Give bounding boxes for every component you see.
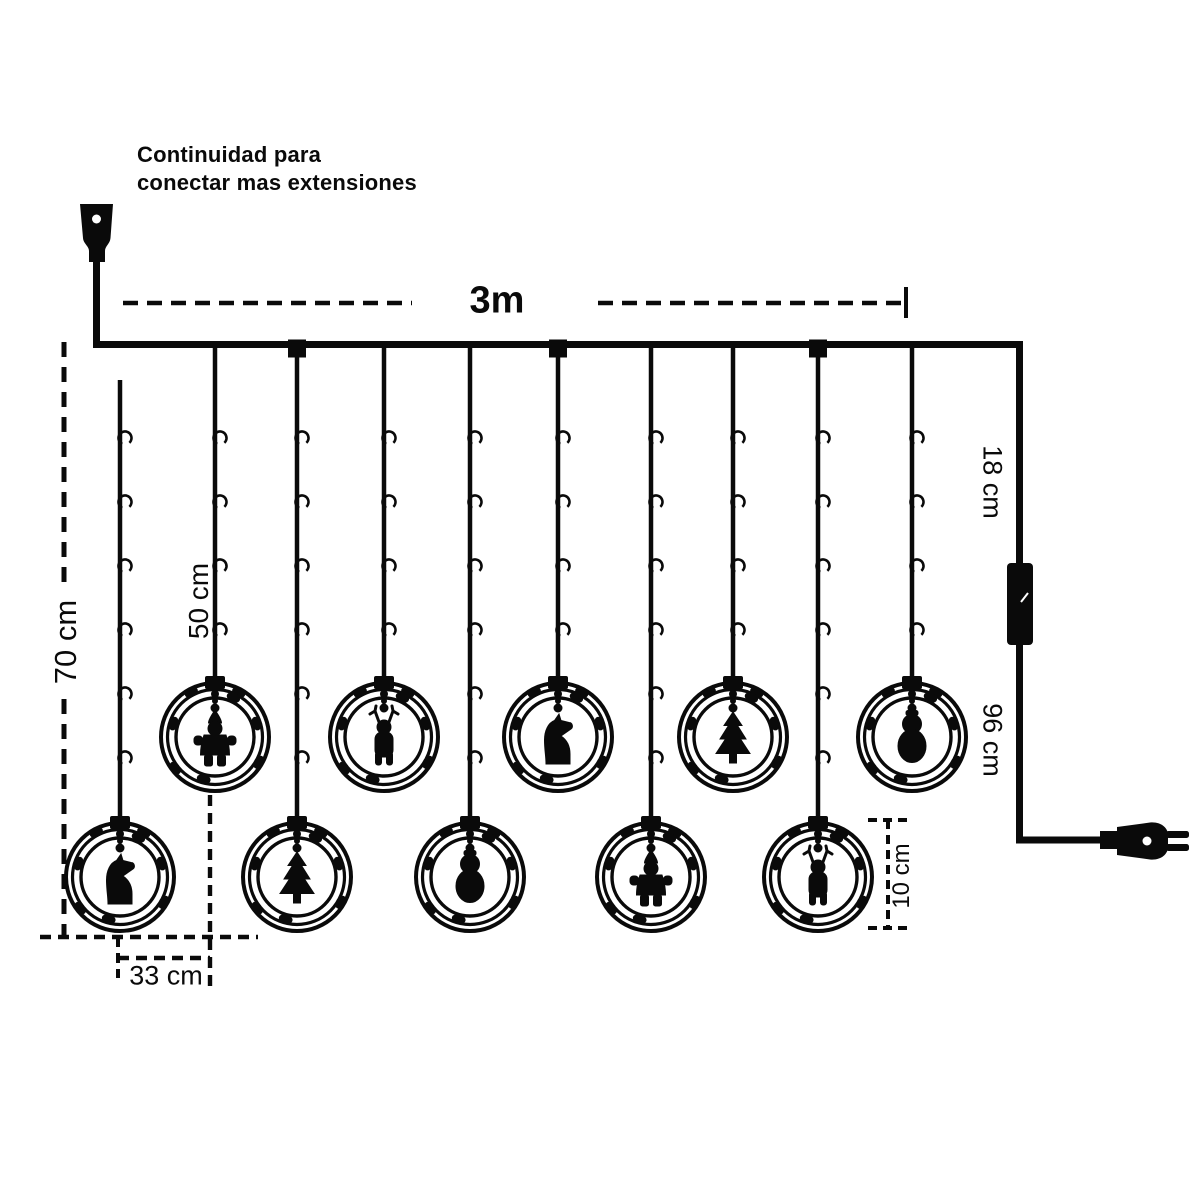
tree-icon (716, 712, 750, 763)
ring-clamp (205, 676, 225, 689)
santa-icon (630, 850, 672, 906)
wire-junction (549, 340, 567, 358)
dim-short-drop-label: 50 cm (183, 563, 215, 639)
ornament-ring-santa (597, 816, 705, 931)
ring-clamp (548, 676, 568, 689)
extension-connector-icon (80, 204, 113, 262)
note-line-1: Continuidad para (137, 141, 417, 169)
ornament-ring-tree (679, 676, 787, 791)
light-drop (679, 345, 787, 792)
horse-icon (107, 854, 135, 904)
light-drop (330, 345, 438, 792)
ring-clamp (110, 816, 130, 829)
snowman-icon (456, 851, 484, 903)
string-lights-diagram: Continuidad para conectar mas extensione… (0, 0, 1200, 1200)
light-drop (858, 345, 966, 792)
ornament-ring-snowman (858, 676, 966, 791)
dim-lead-top-label: 18 cm (977, 445, 1008, 519)
snowman-icon (898, 711, 926, 763)
ornament-ring-reindeer (330, 676, 438, 791)
light-drop (597, 345, 705, 932)
wire-junction (809, 340, 827, 358)
note-line-2: conectar mas extensiones (137, 169, 417, 197)
ornament-ring-santa (161, 676, 269, 791)
ring-clamp (808, 816, 828, 829)
ornament-ring-reindeer (764, 816, 872, 931)
dim-drop-spacing-label: 33 cm (129, 961, 203, 992)
tree-icon (280, 852, 314, 903)
light-drop (161, 345, 269, 792)
power-plug-icon (1100, 822, 1189, 859)
ring-clamp (641, 816, 661, 829)
ornament-ring-horse (66, 816, 174, 931)
santa-icon (194, 710, 236, 766)
horse-icon (545, 714, 573, 764)
controller-box (1007, 563, 1033, 645)
light-drop (243, 340, 351, 932)
dim-line-33cm (40, 795, 258, 988)
light-drop (504, 340, 612, 792)
dim-lead-bottom-label: 96 cm (977, 703, 1008, 777)
ring-clamp (902, 676, 922, 689)
wire-junction (288, 340, 306, 358)
dim-total-width-label: 3m (470, 280, 525, 323)
dim-ring-diameter-label: 10 cm (888, 843, 916, 908)
ring-clamp (374, 676, 394, 689)
ring-clamp (287, 816, 307, 829)
ring-clamp (723, 676, 743, 689)
reindeer-icon (804, 846, 832, 905)
reindeer-icon (370, 706, 398, 765)
ornament-ring-tree (243, 816, 351, 931)
dim-long-drop-label: 70 cm (48, 600, 84, 684)
light-drop (416, 345, 524, 932)
ornament-ring-horse (504, 676, 612, 791)
continuity-note: Continuidad para conectar mas extensione… (137, 141, 417, 197)
light-drop (764, 340, 872, 932)
ornament-ring-snowman (416, 816, 524, 931)
ring-clamp (460, 816, 480, 829)
